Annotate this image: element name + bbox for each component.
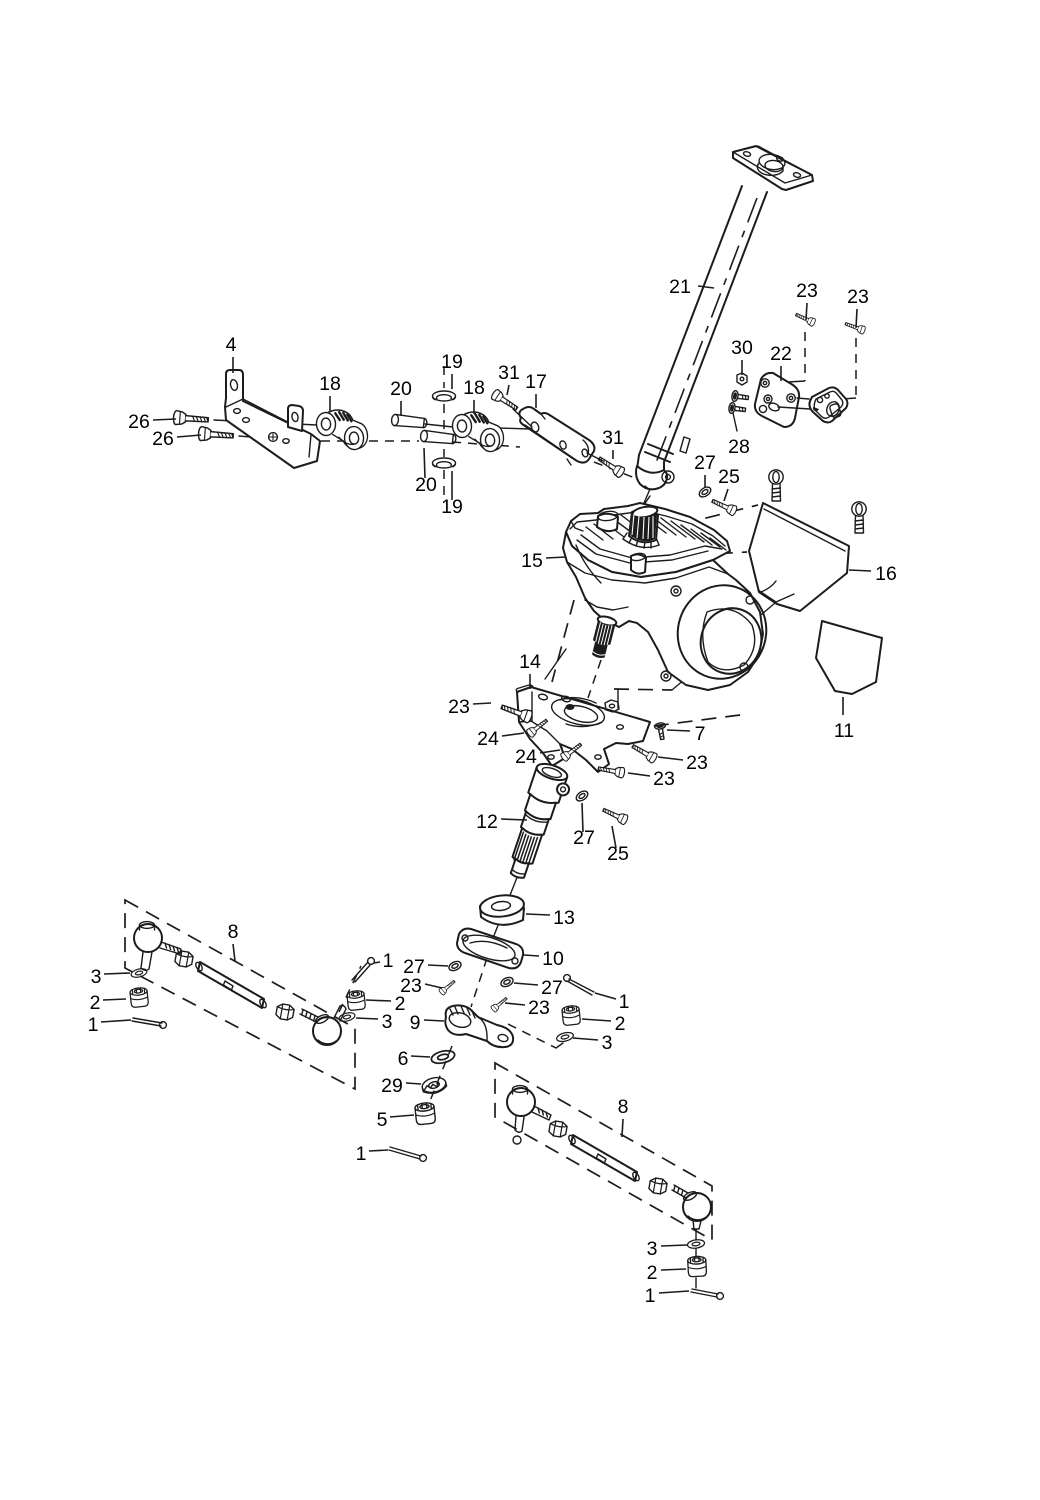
svg-text:7: 7 (695, 723, 706, 745)
svg-text:29: 29 (381, 1075, 403, 1097)
svg-text:3: 3 (647, 1238, 658, 1260)
svg-text:23: 23 (448, 696, 470, 718)
svg-text:4: 4 (226, 334, 237, 356)
svg-text:18: 18 (319, 373, 341, 395)
svg-text:24: 24 (477, 728, 499, 750)
svg-text:1: 1 (88, 1014, 99, 1036)
svg-text:25: 25 (718, 466, 740, 488)
svg-text:1: 1 (619, 991, 630, 1013)
svg-text:25: 25 (607, 843, 629, 865)
svg-text:11: 11 (834, 720, 854, 742)
svg-text:23: 23 (528, 997, 550, 1019)
svg-text:20: 20 (415, 474, 437, 496)
svg-text:8: 8 (618, 1096, 629, 1118)
svg-text:2: 2 (615, 1013, 626, 1035)
svg-text:17: 17 (525, 371, 547, 393)
svg-text:12: 12 (476, 811, 498, 833)
svg-text:26: 26 (128, 411, 150, 433)
svg-text:13: 13 (553, 907, 575, 929)
svg-text:3: 3 (91, 966, 102, 988)
svg-text:2: 2 (90, 992, 101, 1014)
svg-text:23: 23 (653, 768, 675, 790)
svg-text:23: 23 (686, 752, 708, 774)
svg-text:1: 1 (356, 1143, 367, 1165)
svg-text:23: 23 (847, 286, 869, 308)
svg-text:30: 30 (731, 337, 753, 359)
svg-text:5: 5 (377, 1109, 388, 1131)
svg-text:31: 31 (602, 427, 624, 449)
svg-text:18: 18 (463, 377, 485, 399)
svg-text:8: 8 (228, 921, 239, 943)
svg-text:20: 20 (390, 378, 412, 400)
svg-text:26: 26 (152, 428, 174, 450)
svg-text:16: 16 (875, 563, 897, 585)
svg-text:3: 3 (602, 1032, 613, 1054)
svg-text:28: 28 (728, 436, 750, 458)
svg-text:27: 27 (573, 827, 595, 849)
svg-text:31: 31 (498, 362, 520, 384)
svg-text:23: 23 (400, 975, 422, 997)
svg-text:10: 10 (542, 948, 564, 970)
svg-text:3: 3 (382, 1011, 393, 1033)
svg-text:19: 19 (441, 351, 463, 373)
svg-text:27: 27 (694, 452, 716, 474)
svg-text:15: 15 (521, 550, 543, 572)
svg-text:1: 1 (645, 1285, 656, 1307)
svg-text:27: 27 (541, 977, 563, 999)
svg-text:6: 6 (398, 1048, 409, 1070)
svg-text:14: 14 (519, 651, 541, 673)
svg-text:23: 23 (796, 280, 818, 302)
svg-text:24: 24 (515, 746, 537, 768)
svg-text:1: 1 (383, 950, 394, 972)
svg-text:9: 9 (410, 1012, 421, 1034)
svg-text:21: 21 (669, 276, 691, 298)
svg-text:2: 2 (647, 1262, 658, 1284)
svg-text:22: 22 (770, 343, 792, 365)
